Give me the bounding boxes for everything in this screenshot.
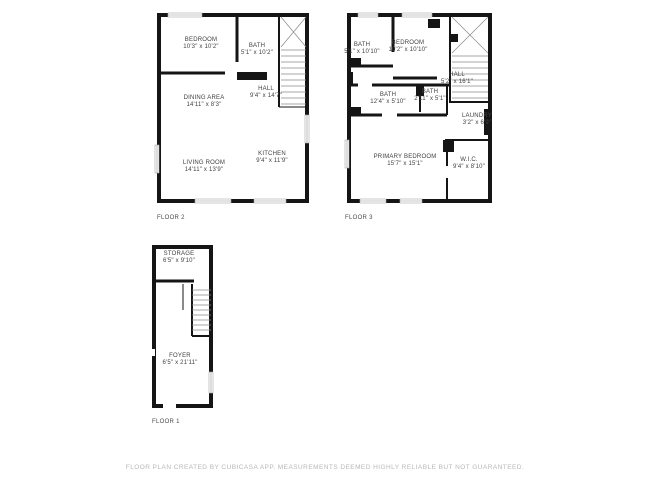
room-name: BATH (241, 43, 273, 50)
room-dims: 9'4" x 14'7" (250, 93, 282, 100)
room-name: HALL (441, 72, 473, 79)
floor3-label: FLOOR 3 (345, 215, 373, 221)
room-dims: 14'11" x 13'9" (183, 167, 225, 174)
room-dims: 9'4" x 11'9" (256, 158, 288, 165)
room-dims: 10'2" x 10'10" (388, 47, 427, 54)
floorplan-drawing (0, 0, 650, 488)
room-name: BEDROOM (388, 40, 427, 47)
room-dims: 6'5" x 9'10" (163, 258, 195, 265)
room-label-floor2-hall: HALL 9'4" x 14'7" (250, 86, 282, 100)
room-dims: 6'5" x 21'11" (162, 360, 197, 367)
room-label-floor3-primary: PRIMARY BEDROOM 15'7" x 15'1" (374, 154, 437, 168)
room-label-floor3-bath1: BATH 5'1" x 10'10" (344, 42, 380, 56)
floor1-plan (150, 247, 213, 408)
room-name: KITCHEN (256, 151, 288, 158)
room-dims: 12'4" x 5'10" (370, 99, 406, 106)
floor1-outer-walls (154, 247, 211, 406)
room-dims: 14'11" x 8'3" (184, 102, 225, 109)
disclaimer-text: FLOOR PLAN CREATED BY CUBICASA APP. MEAS… (0, 464, 650, 471)
room-label-floor2-dining: DINING AREA 14'11" x 8'3" (184, 95, 225, 109)
room-label-floor1-foyer: FOYER 6'5" x 21'11" (162, 353, 197, 367)
room-name: FOYER (162, 353, 197, 360)
room-name: BATH (414, 89, 446, 96)
room-label-floor2-bath: BATH 5'1" x 10'2" (241, 43, 273, 57)
room-dims: 15'7" x 15'1" (374, 161, 437, 168)
room-dims: 5'1" x 10'2" (241, 50, 273, 57)
room-label-floor3-hall: HALL 5'2" x 16'1" (441, 72, 473, 86)
room-label-floor3-wic: W.I.C. 9'4" x 8'10" (453, 157, 485, 171)
room-label-floor2-bedroom: BEDROOM 10'3" x 10'2" (183, 37, 219, 51)
room-name: DINING AREA (184, 95, 225, 102)
room-label-floor2-kitchen: KITCHEN 9'4" x 11'9" (256, 151, 288, 165)
room-label-floor1-storage: STORAGE 6'5" x 9'10" (163, 251, 195, 265)
floorplan-page: BEDROOM 10'3" x 10'2" BATH 5'1" x 10'2" … (0, 0, 650, 488)
room-name: BEDROOM (183, 37, 219, 44)
room-name: LAUNDRY (462, 113, 492, 120)
room-name: LIVING ROOM (183, 160, 225, 167)
floor2-plan (155, 13, 309, 203)
room-dims: 5'2" x 16'1" (441, 79, 473, 86)
room-dims: 9'4" x 8'10" (453, 164, 485, 171)
floor1-label: FLOOR 1 (152, 419, 180, 425)
room-label-floor3-bath3: BATH 2'11" x 5'1" (414, 89, 446, 103)
room-dims: 3'2" x 6'9" (462, 120, 492, 127)
room-name: BATH (344, 42, 380, 49)
room-label-floor3-bath2: BATH 12'4" x 5'10" (370, 92, 406, 106)
room-label-floor2-living: LIVING ROOM 14'11" x 13'9" (183, 160, 225, 174)
room-label-floor3-bedroom: BEDROOM 10'2" x 10'10" (388, 40, 427, 54)
room-name: PRIMARY BEDROOM (374, 154, 437, 161)
room-label-floor3-laundry: LAUNDRY 3'2" x 6'9" (462, 113, 492, 127)
room-name: BATH (370, 92, 406, 99)
room-name: STORAGE (163, 251, 195, 258)
room-dims: 2'11" x 5'1" (414, 96, 446, 103)
floor2-label: FLOOR 2 (157, 215, 185, 221)
room-dims: 5'1" x 10'10" (344, 49, 380, 56)
room-name: HALL (250, 86, 282, 93)
room-name: W.I.C. (453, 157, 485, 164)
room-dims: 10'3" x 10'2" (183, 44, 219, 51)
